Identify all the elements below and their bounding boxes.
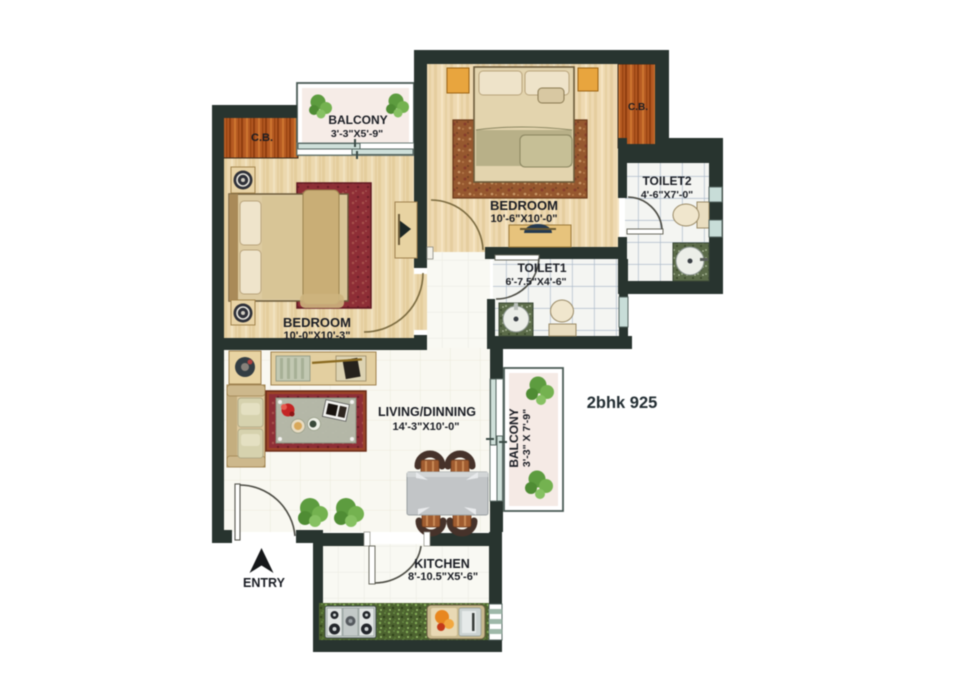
svg-text:KITCHEN: KITCHEN (414, 557, 470, 571)
svg-text:2bhk 925: 2bhk 925 (587, 394, 658, 412)
svg-text:3'-3"X5'-9": 3'-3"X5'-9" (331, 128, 383, 140)
svg-text:BALCONY: BALCONY (328, 113, 387, 127)
svg-text:10'-6"X10'-0": 10'-6"X10'-0" (490, 213, 557, 225)
svg-text:LIVING/DINNING: LIVING/DINNING (378, 405, 476, 419)
svg-text:BALCONY: BALCONY (507, 408, 521, 467)
svg-text:14'-3"X10'-0": 14'-3"X10'-0" (392, 421, 459, 433)
svg-text:ENTRY: ENTRY (243, 576, 286, 590)
svg-text:10'-0"X10'-3": 10'-0"X10'-3" (283, 330, 350, 342)
svg-text:BEDROOM: BEDROOM (490, 198, 558, 213)
svg-text:BEDROOM: BEDROOM (283, 315, 351, 330)
svg-text:4'-6"X7'-0": 4'-6"X7'-0" (641, 189, 693, 201)
svg-text:TOILET1: TOILET1 (517, 261, 566, 275)
svg-text:3'-3" X 7'-9": 3'-3" X 7'-9" (521, 409, 533, 467)
svg-text:6'-7.5"X4'-6": 6'-7.5"X4'-6" (505, 276, 566, 288)
svg-text:8'-10.5"X5'-6": 8'-10.5"X5'-6" (408, 571, 478, 583)
svg-text:C.B.: C.B. (251, 132, 273, 144)
svg-text:TOILET2: TOILET2 (642, 174, 691, 188)
svg-text:C.B.: C.B. (628, 102, 648, 113)
